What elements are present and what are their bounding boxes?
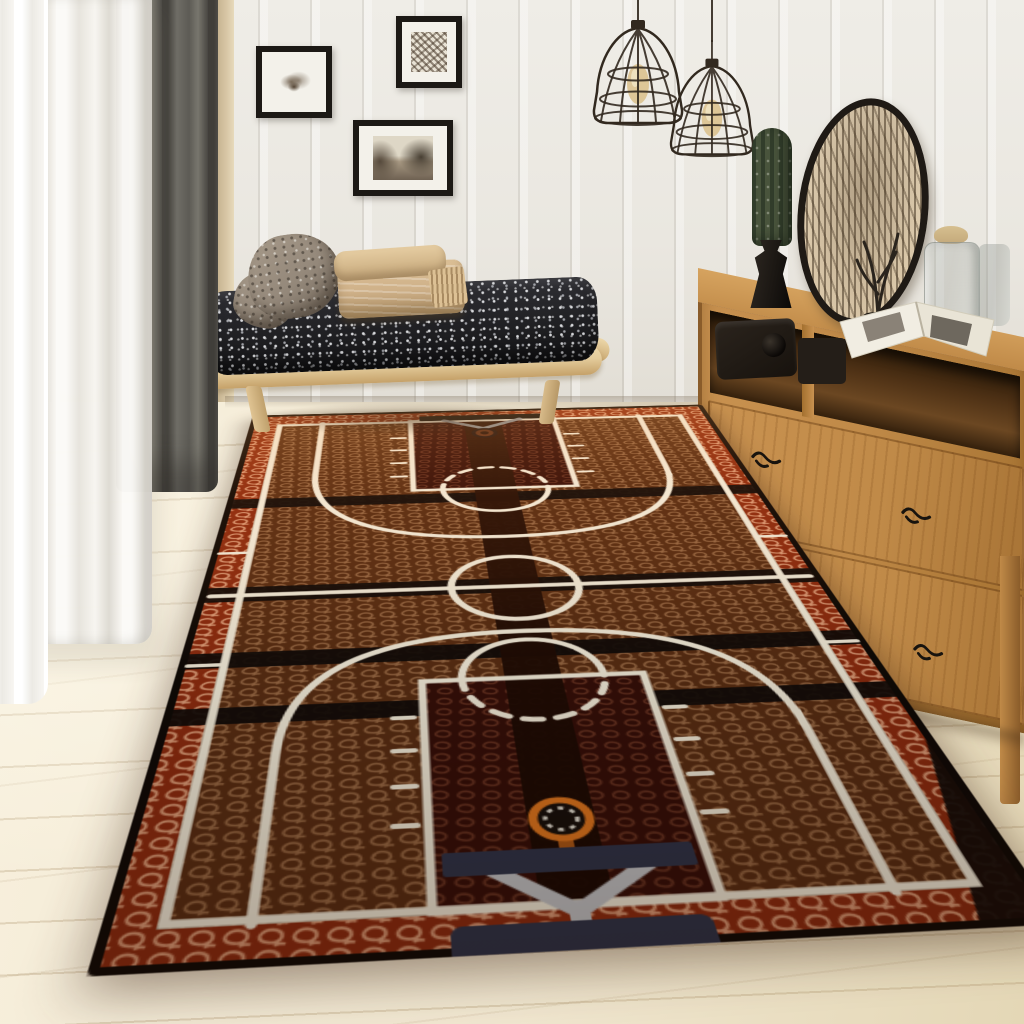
frame-mat — [262, 52, 326, 112]
botanical-print-art — [411, 32, 448, 73]
frame-mat — [359, 126, 447, 190]
sheer-curtain-edge — [0, 0, 48, 704]
sideboard-leg — [1000, 556, 1020, 804]
room-photo — [0, 0, 1024, 1024]
landscape-photo-art — [373, 136, 433, 180]
frame-botanical-print — [396, 16, 462, 88]
coral-sketch-art — [272, 62, 316, 103]
camera-on-shelf — [715, 318, 798, 380]
blanket-fringe — [428, 266, 469, 309]
cactus — [752, 128, 792, 246]
frame-landscape-photo — [353, 120, 453, 196]
frame-mat — [402, 22, 456, 82]
frame-coral-sketch — [256, 46, 332, 118]
open-book — [834, 296, 1006, 366]
